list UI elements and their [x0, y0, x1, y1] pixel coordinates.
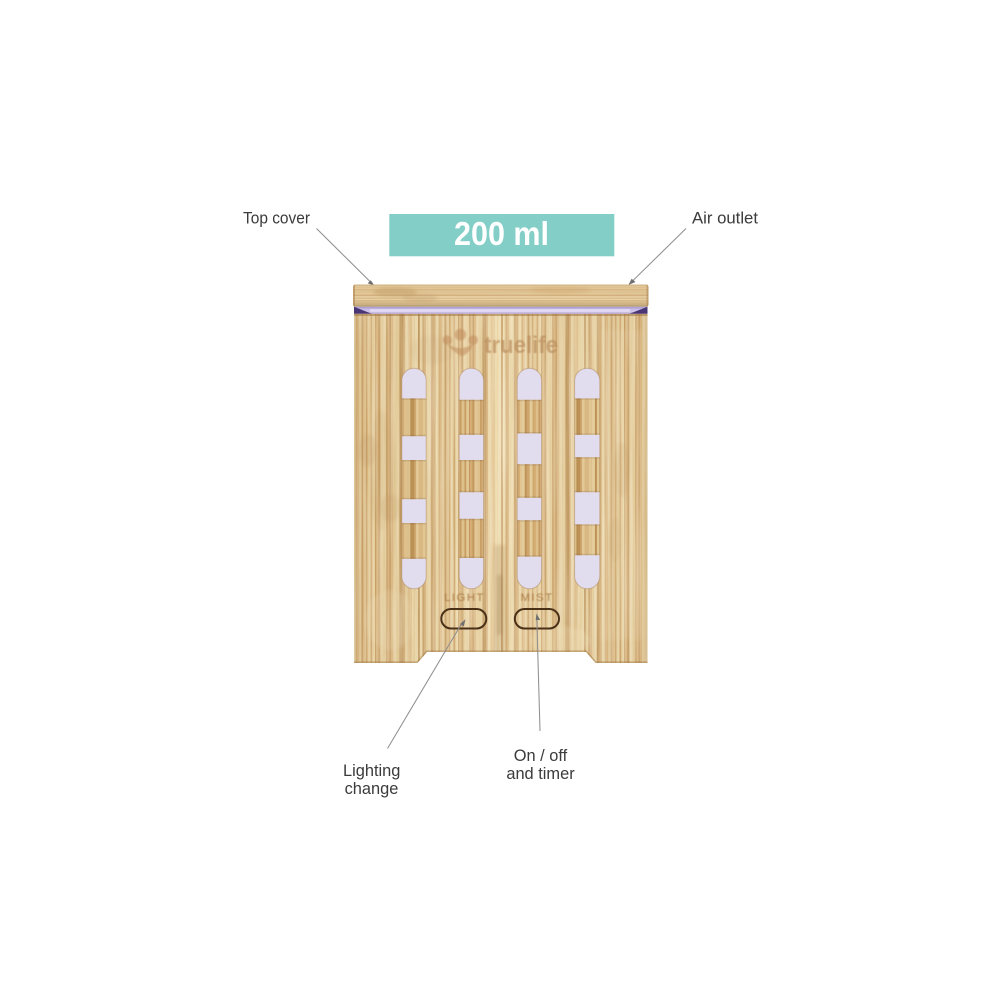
svg-text:change: change	[345, 780, 399, 798]
svg-text:200 ml: 200 ml	[454, 216, 549, 253]
svg-text:truelife: truelife	[484, 332, 558, 359]
svg-text:On / off: On / off	[514, 747, 568, 765]
svg-text:Top cover: Top cover	[243, 209, 311, 227]
svg-text:Lighting: Lighting	[343, 762, 400, 780]
svg-text:Air outlet: Air outlet	[692, 209, 758, 227]
svg-text:LIGHT: LIGHT	[444, 592, 485, 604]
svg-text:and timer: and timer	[506, 765, 575, 783]
svg-text:MIST: MIST	[521, 592, 554, 604]
